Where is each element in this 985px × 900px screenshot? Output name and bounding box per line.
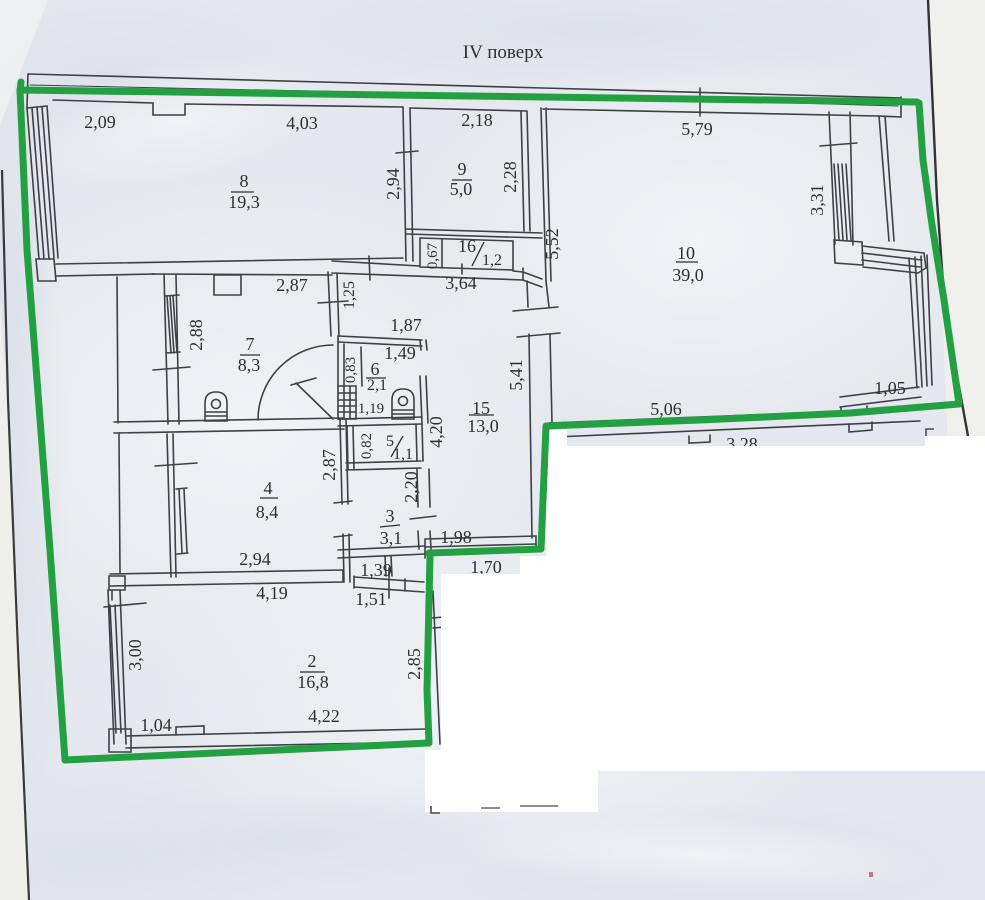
svg-text:1,25: 1,25 xyxy=(341,281,358,309)
svg-text:2,85: 2,85 xyxy=(404,648,424,680)
svg-text:2,28: 2,28 xyxy=(500,161,520,193)
svg-text:5,79: 5,79 xyxy=(681,119,713,139)
svg-text:19,3: 19,3 xyxy=(228,192,260,212)
svg-text:6: 6 xyxy=(371,359,380,379)
svg-text:1,05: 1,05 xyxy=(874,378,906,398)
svg-text:1,04: 1,04 xyxy=(140,715,172,735)
svg-text:8,3: 8,3 xyxy=(238,355,261,375)
svg-text:2,87: 2,87 xyxy=(276,275,308,295)
svg-text:1,51: 1,51 xyxy=(355,589,387,609)
svg-text:4,03: 4,03 xyxy=(286,113,318,133)
svg-text:5,41: 5,41 xyxy=(506,359,526,391)
svg-text:2,94: 2,94 xyxy=(383,168,403,200)
svg-text:8,4: 8,4 xyxy=(256,502,279,522)
svg-text:7: 7 xyxy=(246,334,255,354)
svg-text:1,19: 1,19 xyxy=(358,401,384,417)
svg-text:2,87: 2,87 xyxy=(319,449,339,481)
svg-text:4,19: 4,19 xyxy=(256,583,288,603)
svg-text:1,98: 1,98 xyxy=(440,527,472,547)
svg-text:1,39: 1,39 xyxy=(360,560,392,580)
svg-text:3: 3 xyxy=(386,506,395,526)
svg-text:13,0: 13,0 xyxy=(467,416,499,436)
svg-text:1,87: 1,87 xyxy=(390,315,422,335)
svg-text:3,31: 3,31 xyxy=(807,184,827,216)
svg-text:0,83: 0,83 xyxy=(343,357,359,383)
svg-text:9: 9 xyxy=(458,159,467,179)
svg-text:5,52: 5,52 xyxy=(542,228,562,260)
svg-text:39,0: 39,0 xyxy=(672,265,704,285)
svg-text:1,2: 1,2 xyxy=(482,252,502,269)
svg-text:2,20: 2,20 xyxy=(401,471,421,503)
svg-text:10: 10 xyxy=(677,243,695,263)
svg-text:4,20: 4,20 xyxy=(426,416,446,448)
svg-text:3,64: 3,64 xyxy=(445,273,477,293)
svg-text:IV поверх: IV поверх xyxy=(463,42,544,63)
svg-text:2,1: 2,1 xyxy=(367,377,387,394)
svg-text:2,88: 2,88 xyxy=(186,319,206,351)
svg-text:0,82: 0,82 xyxy=(359,433,375,459)
svg-text:2,09: 2,09 xyxy=(84,112,116,132)
svg-text:2,18: 2,18 xyxy=(461,110,493,130)
svg-text:3,00: 3,00 xyxy=(125,639,145,671)
svg-text:4: 4 xyxy=(264,478,273,498)
svg-text:8: 8 xyxy=(240,171,249,191)
svg-text:2: 2 xyxy=(308,651,317,671)
svg-text:2,94: 2,94 xyxy=(239,549,271,569)
svg-text:1,49: 1,49 xyxy=(384,343,416,363)
svg-text:16: 16 xyxy=(458,236,476,256)
svg-text:16,8: 16,8 xyxy=(297,672,329,692)
svg-text:0,67: 0,67 xyxy=(425,242,441,269)
svg-text:3,1: 3,1 xyxy=(380,528,403,548)
svg-text:5,06: 5,06 xyxy=(650,399,682,419)
svg-text:4,22: 4,22 xyxy=(308,706,340,726)
svg-text:5,0: 5,0 xyxy=(450,179,473,199)
